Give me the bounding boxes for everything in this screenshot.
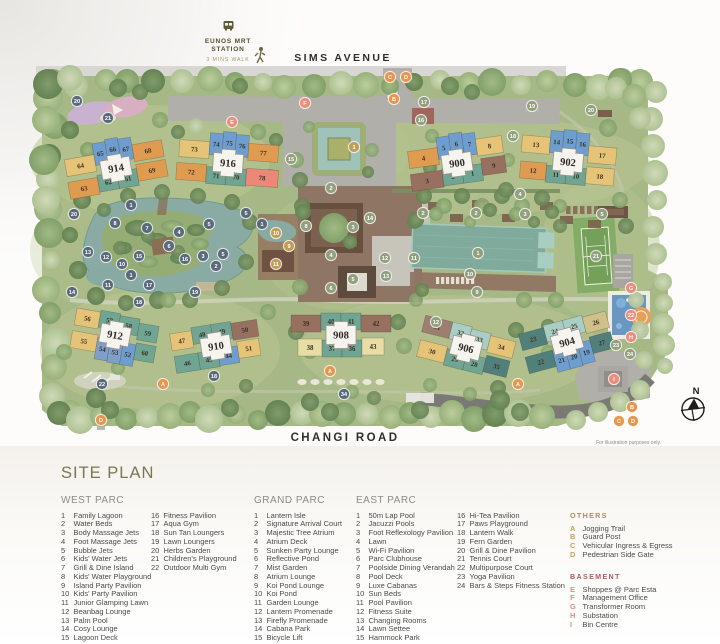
svg-text:72: 72 xyxy=(188,169,196,176)
svg-text:6: 6 xyxy=(329,286,332,292)
svg-text:1: 1 xyxy=(476,251,479,257)
svg-text:16: 16 xyxy=(418,118,424,124)
svg-text:CHANGI ROAD: CHANGI ROAD xyxy=(291,432,400,444)
svg-text:D: D xyxy=(631,419,635,425)
svg-text:15: 15 xyxy=(136,254,142,260)
svg-text:3: 3 xyxy=(201,254,204,260)
svg-text:14: 14 xyxy=(367,216,374,222)
svg-text:B: B xyxy=(392,97,396,103)
svg-text:A: A xyxy=(328,369,332,375)
svg-text:17: 17 xyxy=(598,153,606,161)
svg-text:74: 74 xyxy=(213,141,221,148)
svg-text:18: 18 xyxy=(136,300,142,306)
svg-text:2: 2 xyxy=(421,211,424,217)
svg-text:20: 20 xyxy=(588,108,594,114)
svg-text:EUNOS MRT: EUNOS MRT xyxy=(205,38,251,45)
svg-text:5: 5 xyxy=(351,277,354,283)
svg-text:18: 18 xyxy=(596,173,604,181)
svg-text:1: 1 xyxy=(129,203,132,209)
svg-text:900: 900 xyxy=(449,158,466,171)
svg-text:38: 38 xyxy=(307,345,314,352)
svg-text:C: C xyxy=(617,419,621,425)
svg-text:8: 8 xyxy=(113,221,116,227)
svg-text:11: 11 xyxy=(105,283,111,289)
svg-text:76: 76 xyxy=(239,143,247,150)
svg-text:E: E xyxy=(230,120,234,126)
svg-text:N: N xyxy=(693,386,700,397)
svg-text:6: 6 xyxy=(167,244,170,250)
svg-text:5: 5 xyxy=(600,212,603,218)
svg-text:For illustration purposes only: For illustration purposes only. xyxy=(596,440,661,446)
svg-text:20: 20 xyxy=(71,212,77,218)
svg-text:34: 34 xyxy=(341,392,348,398)
svg-text:19: 19 xyxy=(529,104,535,110)
svg-text:7: 7 xyxy=(145,226,148,232)
svg-text:19: 19 xyxy=(192,290,198,296)
svg-text:12: 12 xyxy=(529,168,537,176)
svg-text:5: 5 xyxy=(244,211,247,217)
svg-text:75: 75 xyxy=(226,140,234,147)
svg-text:902: 902 xyxy=(560,157,577,169)
svg-text:21: 21 xyxy=(105,116,111,122)
svg-text:1: 1 xyxy=(260,222,263,228)
svg-text:10: 10 xyxy=(119,262,125,268)
svg-text:1: 1 xyxy=(352,145,355,151)
svg-text:11: 11 xyxy=(273,262,279,268)
svg-text:43: 43 xyxy=(370,344,377,351)
svg-text:23: 23 xyxy=(613,343,619,349)
svg-text:77: 77 xyxy=(260,150,268,157)
svg-text:39: 39 xyxy=(303,321,310,328)
svg-text:3: 3 xyxy=(351,225,354,231)
svg-text:A: A xyxy=(516,382,520,388)
svg-text:14: 14 xyxy=(69,290,76,296)
svg-text:A: A xyxy=(161,382,165,388)
svg-text:22: 22 xyxy=(628,313,634,319)
svg-text:1: 1 xyxy=(129,273,132,279)
svg-text:5: 5 xyxy=(221,252,224,258)
svg-text:15: 15 xyxy=(288,157,294,163)
svg-text:17: 17 xyxy=(421,100,427,106)
svg-text:F: F xyxy=(303,101,307,107)
svg-text:13: 13 xyxy=(383,274,389,280)
svg-text:12: 12 xyxy=(433,320,439,326)
svg-text:11: 11 xyxy=(552,172,560,180)
svg-text:42: 42 xyxy=(373,321,380,328)
svg-text:SIMS AVENUE: SIMS AVENUE xyxy=(294,52,392,64)
svg-text:B: B xyxy=(630,405,634,411)
svg-text:17: 17 xyxy=(146,283,152,289)
svg-text:16: 16 xyxy=(182,257,188,263)
svg-text:16: 16 xyxy=(579,141,587,149)
svg-text:73: 73 xyxy=(191,146,199,153)
svg-text:14: 14 xyxy=(553,139,561,147)
svg-text:916: 916 xyxy=(220,158,236,170)
svg-text:2: 2 xyxy=(474,211,477,217)
svg-text:11: 11 xyxy=(411,256,417,262)
svg-text:5: 5 xyxy=(207,222,210,228)
svg-text:15: 15 xyxy=(566,138,574,146)
svg-text:2: 2 xyxy=(329,186,332,192)
svg-text:H: H xyxy=(629,335,633,341)
svg-text:13: 13 xyxy=(532,142,540,150)
svg-text:3 MINS WALK: 3 MINS WALK xyxy=(206,57,249,63)
svg-text:36: 36 xyxy=(349,346,356,353)
svg-text:2: 2 xyxy=(214,264,217,270)
svg-text:8: 8 xyxy=(304,224,307,230)
svg-text:24: 24 xyxy=(627,352,634,358)
svg-text:D: D xyxy=(99,418,103,424)
svg-text:18: 18 xyxy=(211,374,217,380)
svg-text:10: 10 xyxy=(467,272,473,278)
svg-text:21: 21 xyxy=(593,254,599,260)
svg-text:18: 18 xyxy=(510,134,516,140)
svg-text:12: 12 xyxy=(382,256,388,262)
svg-text:22: 22 xyxy=(99,382,105,388)
svg-text:3: 3 xyxy=(523,212,526,218)
svg-text:D: D xyxy=(404,75,408,81)
svg-text:G: G xyxy=(629,286,633,292)
svg-text:C: C xyxy=(388,75,392,81)
svg-text:78: 78 xyxy=(258,175,266,182)
svg-text:20: 20 xyxy=(74,99,80,105)
svg-text:12: 12 xyxy=(103,255,109,261)
svg-text:71: 71 xyxy=(212,173,220,180)
svg-text:9: 9 xyxy=(475,290,478,296)
svg-text:STATION: STATION xyxy=(211,46,244,53)
svg-text:41: 41 xyxy=(348,319,355,326)
svg-text:908: 908 xyxy=(333,331,349,342)
svg-text:10: 10 xyxy=(273,231,279,237)
svg-text:13: 13 xyxy=(85,250,91,256)
svg-text:9: 9 xyxy=(287,244,290,250)
